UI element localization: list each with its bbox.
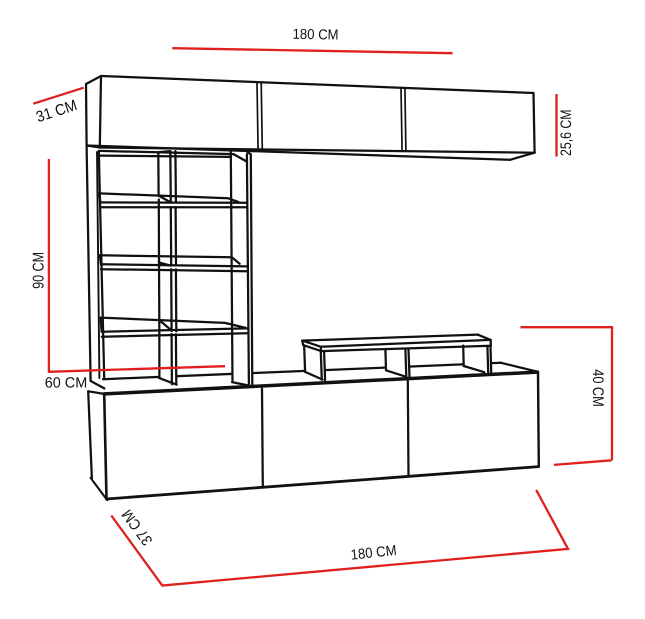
svg-text:60 CM: 60 CM [45, 376, 88, 392]
svg-text:180 CM: 180 CM [292, 27, 338, 44]
svg-text:25,6 CM: 25,6 CM [558, 109, 575, 156]
svg-text:90 CM: 90 CM [31, 252, 48, 289]
svg-text:40 CM: 40 CM [589, 369, 606, 407]
